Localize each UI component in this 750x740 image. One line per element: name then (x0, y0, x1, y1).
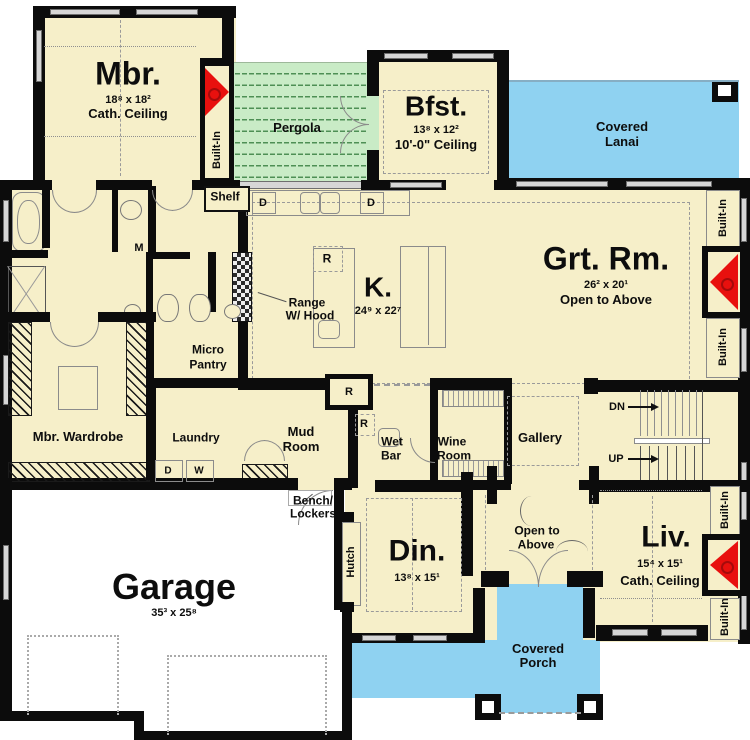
door-opening (50, 312, 98, 322)
garage-name: Garage (112, 567, 236, 607)
porch-entry-deck (497, 584, 583, 640)
wine-label-1: Wine (438, 435, 467, 448)
garage-dim: 35³ x 25⁸ (151, 607, 197, 619)
fireplace-ring-icon (721, 561, 734, 574)
floor-plan: Built-In Built-In Built-In D D R Range (0, 0, 750, 740)
mbr-dim: 18⁸ x 18² (105, 94, 151, 106)
leader-arrow (520, 496, 543, 526)
window (741, 328, 747, 372)
door-opening (152, 180, 192, 190)
window (626, 181, 712, 187)
wall (430, 378, 512, 390)
wall (146, 252, 190, 259)
opening (446, 180, 494, 190)
wall (146, 378, 248, 388)
wall (497, 50, 509, 190)
mud-label-1: Mud (288, 425, 315, 439)
leader-arrow (556, 540, 588, 563)
wall (112, 186, 118, 252)
kitchen-dim: 24⁹ x 22⁷ (355, 305, 401, 317)
wall (473, 588, 485, 643)
island-edge (428, 247, 429, 345)
entry-label-1: Open to (514, 524, 559, 537)
fridge-label: R (345, 386, 353, 398)
window (50, 9, 120, 15)
entry-label-2: Above (518, 538, 555, 551)
grt-builtin-bottom-label: Built-In (717, 328, 729, 366)
window (741, 198, 747, 242)
window (516, 181, 608, 187)
wetbar-counter-line (374, 384, 430, 386)
toilet-icon (189, 294, 211, 322)
bench-label-2: Lockers (290, 507, 336, 520)
wall (42, 186, 50, 248)
stairs-up-label: UP (608, 453, 623, 465)
kitchen-name: K. (364, 273, 392, 304)
window (384, 53, 428, 59)
din-dim: 13⁸ x 15¹ (394, 572, 440, 584)
stairs-up-run (640, 446, 702, 482)
din-name: Din. (389, 535, 446, 568)
dishwasher-label: D (367, 197, 375, 209)
grt-dim: 26² x 20¹ (584, 279, 628, 291)
toilet-icon (157, 294, 179, 322)
dryer-label: D (164, 466, 171, 477)
bfst-name: Bfst. (405, 92, 467, 123)
dn-arrow-icon (628, 406, 652, 408)
wardrobe-rod-icon (8, 462, 150, 482)
grt-note: Open to Above (560, 293, 652, 307)
vanity-sink-icon (120, 200, 142, 220)
kitchen-island (400, 246, 446, 348)
liv-dim: 15⁴ x 15¹ (637, 558, 683, 570)
wall (0, 250, 48, 258)
wetbar-label-1: Wet (381, 435, 403, 448)
hutch-label: Hutch (345, 546, 357, 577)
window (452, 53, 494, 59)
wardrobe-island (58, 366, 98, 410)
stairs-down-run (640, 390, 702, 436)
island-sink-icon (318, 320, 340, 339)
wall-stub (340, 602, 354, 612)
pantry-label-2: Pantry (189, 358, 226, 371)
garage-door-outline (27, 635, 119, 715)
liv-builtin-top-label: Built-In (719, 491, 731, 529)
wall (222, 6, 234, 64)
wetbar-label-2: Bar (381, 449, 401, 462)
porch-edge (499, 712, 581, 714)
foyer-ceiling-line (485, 495, 486, 570)
wall (146, 259, 153, 313)
window (36, 30, 42, 82)
sink-icon (224, 304, 241, 319)
wall (583, 588, 595, 638)
fridge-label: R (360, 418, 368, 430)
mud-label-2: Room (283, 440, 320, 454)
lanai-edge (509, 80, 739, 82)
window (362, 635, 396, 641)
lanai-column-core (718, 85, 731, 96)
wall (238, 378, 330, 390)
fireplace-ring-icon (208, 88, 221, 101)
medicine-label: M (134, 242, 143, 254)
stair-edge (702, 390, 703, 482)
bfst-note: 10'-0" Ceiling (395, 138, 477, 152)
wall (481, 571, 509, 587)
liv-builtin-bottom-label: Built-In (719, 598, 731, 636)
garage-door-outline (167, 655, 327, 735)
wine-rack (442, 390, 504, 407)
fridge-label: R (323, 252, 332, 265)
wall (146, 312, 154, 386)
mbr-note: Cath. Ceiling (88, 107, 167, 121)
shelf-label: Shelf (210, 190, 239, 203)
liv-ceiling-line (600, 598, 702, 599)
gallery-label: Gallery (518, 431, 562, 445)
window (136, 9, 198, 15)
door-opening (298, 478, 334, 490)
door-opening (52, 180, 96, 190)
washer-label: W (194, 466, 203, 477)
wall (461, 472, 473, 576)
porch-column-core (584, 701, 596, 713)
mbr-builtin-label: Built-In (211, 131, 223, 169)
porch-column-core (482, 701, 494, 713)
lanai-label-2: Lanai (605, 135, 639, 149)
mbr-name: Mbr. (95, 56, 161, 91)
window (741, 594, 747, 630)
wardrobe-rod-icon (8, 322, 32, 416)
window (390, 182, 442, 188)
wall (567, 571, 603, 587)
liv-note: Cath. Ceiling (620, 574, 699, 588)
kitchen-sink-icon (320, 192, 340, 214)
wall (342, 598, 352, 738)
bfst-dim: 13⁸ x 12² (413, 124, 459, 136)
stairs-dn-label: DN (609, 401, 625, 413)
grt-name: Grt. Rm. (543, 241, 669, 276)
pantry-label-1: Micro (192, 343, 224, 356)
wine-label-2: Room (437, 449, 471, 462)
window (3, 545, 9, 600)
window (413, 635, 447, 641)
dishwasher-label: D (259, 197, 267, 209)
kitchen-sink-icon (300, 192, 320, 214)
window (612, 629, 648, 636)
stair-rail (634, 438, 710, 444)
tub-basin-icon (17, 200, 40, 244)
liv-name: Liv. (641, 521, 690, 554)
porch-label-2: Porch (520, 656, 557, 670)
pergola-label: Pergola (273, 121, 321, 135)
window (3, 200, 9, 242)
liv-ceiling-line (600, 490, 702, 491)
range-label-2: W/ Hood (286, 309, 335, 322)
column-cross (473, 480, 511, 490)
wardrobe-label: Mbr. Wardrobe (33, 430, 124, 444)
foyer-ceiling-line (592, 495, 593, 570)
window (661, 629, 697, 636)
fireplace-ring-icon (721, 278, 734, 291)
up-arrow-icon (628, 458, 652, 460)
porch-step (499, 698, 581, 713)
grt-builtin-top-label: Built-In (717, 199, 729, 237)
laundry-label: Laundry (172, 431, 219, 444)
wall-stub (340, 512, 354, 522)
wall (375, 480, 473, 492)
pergola-sill (232, 181, 369, 189)
lanai-label-1: Covered (596, 120, 648, 134)
